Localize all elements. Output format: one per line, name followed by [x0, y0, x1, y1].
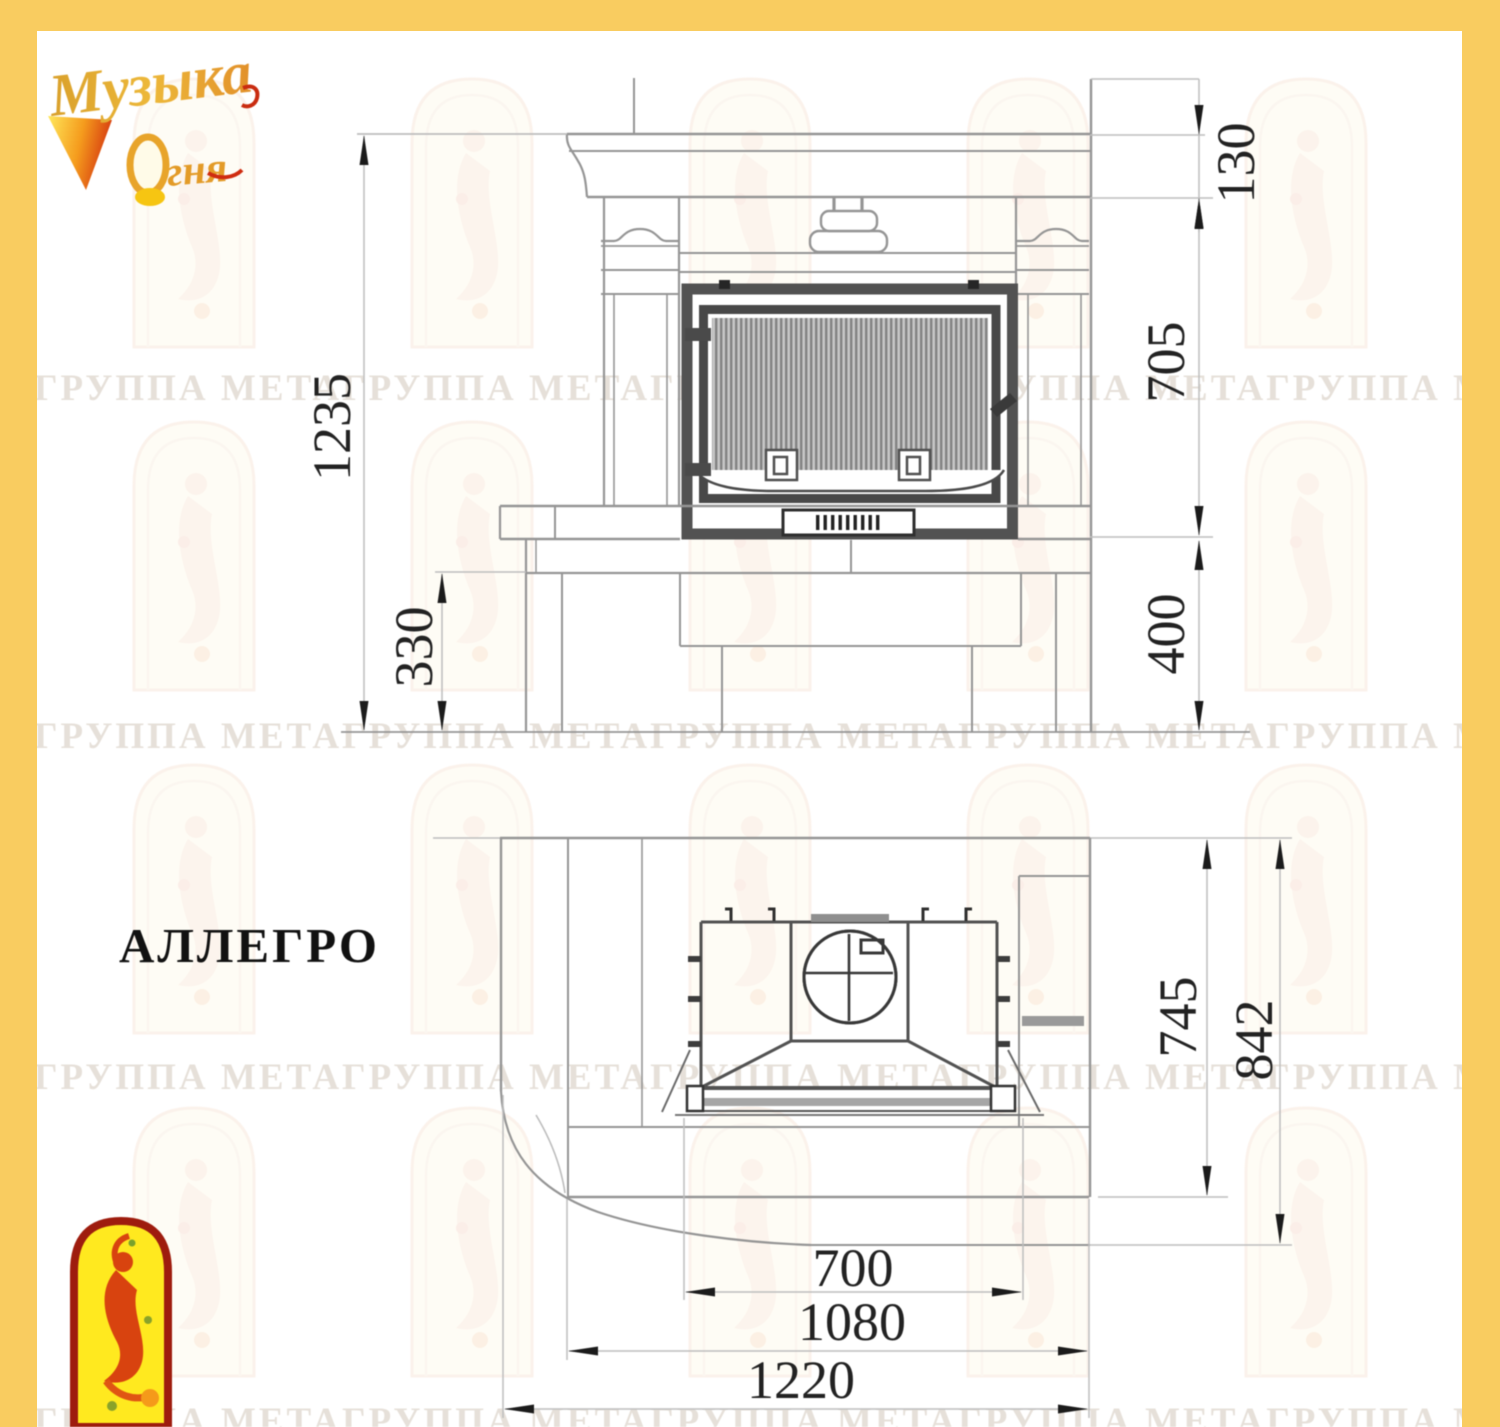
svg-text:ГРУППА МЕТАГРУППА МЕТАГРУППА М: ГРУППА МЕТАГРУППА МЕТАГРУППА МЕТАГРУППА … — [34, 716, 1500, 757]
svg-text:842: 842 — [1224, 1000, 1284, 1081]
svg-text:гня: гня — [165, 145, 229, 196]
svg-text:1080: 1080 — [798, 1292, 906, 1352]
svg-text:130: 130 — [1206, 123, 1266, 204]
svg-text:705: 705 — [1136, 322, 1196, 403]
svg-text:1220: 1220 — [747, 1350, 855, 1410]
svg-text:1235: 1235 — [302, 373, 362, 481]
svg-text:400: 400 — [1136, 594, 1196, 675]
svg-text:330: 330 — [384, 607, 444, 688]
svg-text:745: 745 — [1148, 977, 1208, 1058]
svg-text:АЛЛЕГРО: АЛЛЕГРО — [119, 918, 380, 973]
svg-text:700: 700 — [813, 1238, 894, 1298]
